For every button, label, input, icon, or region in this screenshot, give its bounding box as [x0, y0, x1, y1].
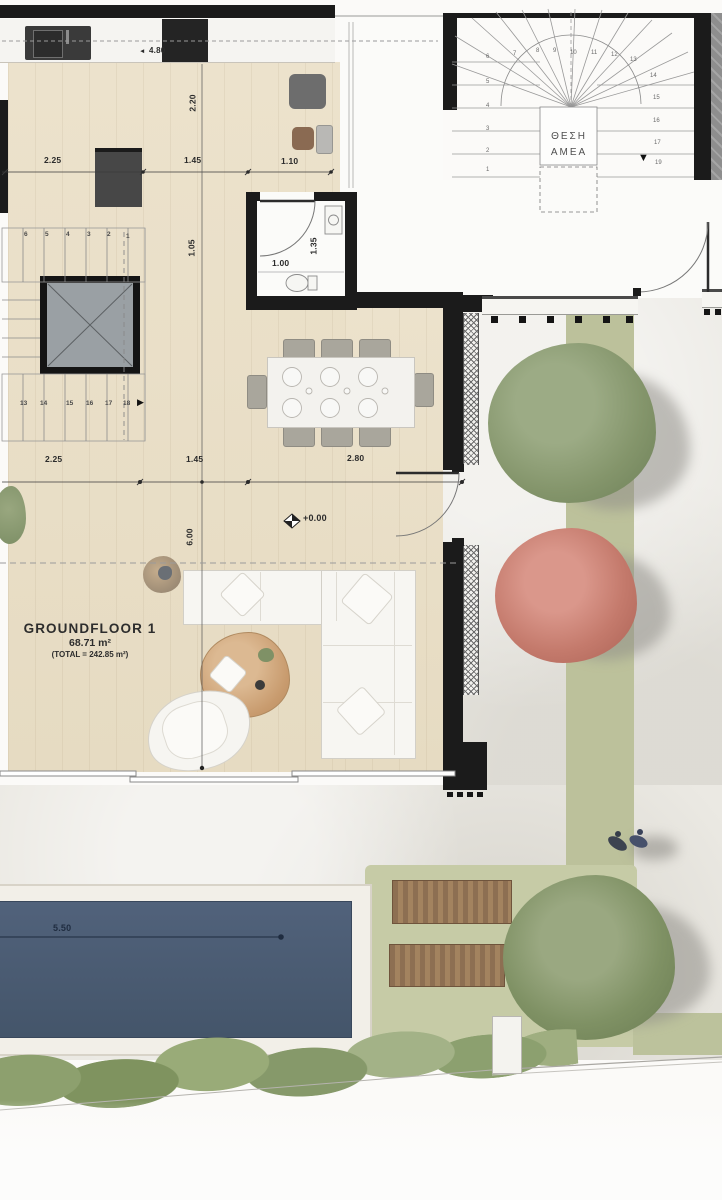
stair-step-number: 1 — [126, 233, 130, 240]
level-marker-value: +0.00 — [303, 513, 327, 523]
terrace-door — [396, 464, 464, 546]
bottom-fade — [0, 1100, 722, 1200]
dim-kitchen-3: 1.10 — [281, 156, 298, 166]
dim-hall-depth: 1.05 — [187, 239, 197, 256]
dim-kitchen-1: 2.25 — [44, 155, 61, 165]
room-title: GROUNDFLOOR 1 — [10, 621, 170, 636]
floor-plan: GROUNDFLOOR 1 68.71 m² (TOTAL = 242.85 m… — [0, 0, 722, 1200]
dim-living-depth: 6.00 — [185, 528, 195, 545]
stair-step-number: 13 — [630, 57, 637, 63]
dim-arrow-icon: ◄ — [139, 48, 146, 55]
dim-living-1: 2.25 — [45, 454, 62, 464]
garden-wall-ticks — [447, 309, 721, 797]
accessible-parking-label-2: ΑΜΕΑ — [539, 147, 599, 158]
stair-step-number: 8 — [536, 48, 539, 54]
dim-pool-length: 5.50 — [53, 923, 71, 933]
stair-step-number: 3 — [87, 231, 91, 238]
accessible-parking-label-1: ΘΕΣΗ — [539, 131, 599, 142]
stair-step-number: 17 — [105, 400, 112, 407]
stair-step-number: 10 — [570, 50, 577, 56]
stair-step-number: 4 — [486, 103, 489, 109]
dim-kitchen-2: 1.45 — [184, 155, 201, 165]
stair-step-number: 15 — [66, 400, 73, 407]
stair-down-icon: ▼ — [638, 152, 649, 164]
garden-path-gap — [492, 1016, 522, 1074]
stair-step-number: 11 — [591, 50, 597, 56]
stair-step-number: 13 — [20, 400, 27, 407]
living-dim-line — [2, 479, 465, 485]
stair-step-number: 19 — [655, 160, 662, 166]
bathroom-door — [260, 201, 315, 256]
stair-step-number: 16 — [653, 118, 660, 124]
stair-shaft-cross — [48, 284, 132, 366]
stair-direction-icon: ▶ — [137, 397, 144, 408]
stair-step-number: 5 — [45, 231, 49, 238]
stair-step-number: 14 — [40, 400, 47, 407]
room-total-area: (TOTAL = 242.85 m²) — [10, 650, 170, 659]
dining-plates — [283, 368, 389, 418]
glass-facade — [0, 771, 455, 782]
exterior-stair — [452, 9, 694, 212]
dim-bath-width: 1.00 — [272, 258, 289, 268]
stair-step-number: 15 — [653, 95, 660, 101]
room-label: GROUNDFLOOR 1 68.71 m² (TOTAL = 242.85 m… — [10, 621, 170, 659]
kitchen-dim-line — [2, 169, 334, 175]
stair-step-number: 12 — [611, 52, 618, 58]
dim-kitchen-depth: 2.20 — [188, 94, 198, 111]
dim-living-2: 1.45 — [186, 454, 203, 464]
plan-linework — [0, 0, 722, 1200]
stair-step-number: 7 — [513, 51, 516, 57]
stair-step-number: 9 — [553, 48, 556, 54]
dim-living-3: 2.80 — [347, 453, 364, 463]
stair-step-number: 4 — [66, 231, 70, 238]
stair-step-number: 16 — [86, 400, 93, 407]
stair-step-number: 2 — [107, 231, 111, 238]
level-marker-icon — [284, 514, 300, 528]
stair-step-number: 17 — [654, 140, 661, 146]
stair-step-number: 1 — [486, 167, 489, 173]
dim-kitchen-width: 4.80 — [149, 46, 165, 55]
entry-gate-door — [633, 222, 708, 296]
pool-dim-line — [0, 934, 284, 940]
stair-step-number: 2 — [486, 148, 489, 154]
stair-step-number: 18 — [123, 400, 130, 407]
stair-step-number: 6 — [486, 54, 489, 60]
stair-step-number: 14 — [650, 73, 657, 79]
stair-step-number: 3 — [486, 126, 489, 132]
dim-bath-depth: 1.35 — [309, 237, 319, 254]
room-area: 68.71 m² — [10, 637, 170, 649]
stair-step-number: 6 — [24, 231, 28, 238]
stair-step-number: 5 — [486, 79, 489, 85]
